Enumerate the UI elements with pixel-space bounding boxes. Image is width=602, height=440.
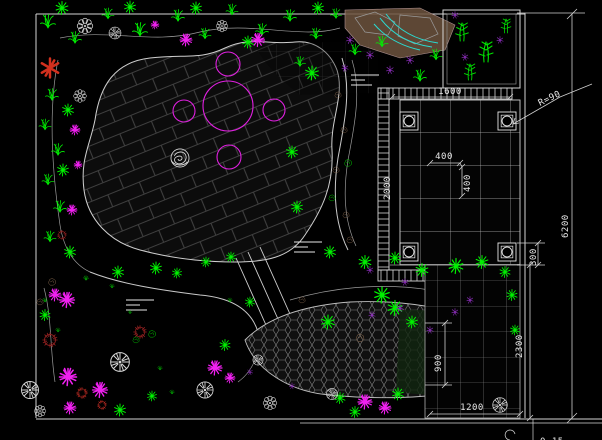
plant-star	[313, 2, 324, 14]
dim-300: 300	[529, 248, 539, 266]
plant-fern	[102, 8, 114, 19]
plant-splash	[379, 402, 391, 414]
plant-rock	[343, 212, 349, 218]
dim-1600: 1600	[438, 87, 462, 97]
plant-fern	[42, 174, 54, 185]
plant-splash	[151, 21, 159, 29]
plant-rock	[299, 297, 305, 303]
plant-fern	[310, 28, 322, 39]
plant-grass	[158, 366, 163, 370]
plant-star	[359, 256, 371, 269]
plant-fern	[199, 28, 211, 39]
dim-6200: 6200	[561, 214, 571, 238]
plant-wheel	[493, 398, 507, 412]
plant-petal	[77, 18, 93, 34]
plant-fern	[69, 32, 82, 44]
plant-purple	[386, 66, 393, 74]
dim-900: 900	[434, 354, 444, 372]
plant-bamboo	[464, 64, 475, 80]
plant-star	[113, 266, 124, 278]
plant-grass	[128, 310, 132, 313]
plant-splash	[225, 373, 235, 383]
plant-splash	[49, 289, 61, 301]
plant-bamboo	[479, 42, 493, 62]
landscape-plan-svg: 1600 R=90 400 400 2000 300 900 1200 2300…	[0, 0, 602, 440]
plant-wheel	[111, 353, 130, 372]
level-spiral-icon	[505, 430, 515, 440]
plant-star	[375, 287, 389, 303]
plant-rock	[37, 299, 43, 305]
plant-purple	[367, 266, 373, 273]
plant-grass	[83, 276, 89, 280]
plant-splash	[70, 125, 80, 135]
pavilion-column	[400, 112, 418, 130]
plant-rock	[341, 127, 347, 133]
plant-fern	[41, 15, 56, 29]
plant-splash	[74, 161, 82, 169]
plant-star	[148, 391, 157, 401]
plant-petal	[216, 20, 228, 32]
plant-wheel	[197, 382, 213, 398]
plant-star	[63, 104, 74, 116]
plant-star	[220, 340, 230, 351]
plant-redshrub	[97, 400, 107, 410]
dim-400-w: 400	[435, 152, 453, 162]
pond-edge-top	[90, 272, 258, 332]
plant-star	[151, 262, 162, 274]
plant-star	[350, 407, 360, 418]
plant-redshrub	[133, 325, 147, 339]
plant-star	[125, 1, 136, 13]
pavilion-column	[400, 243, 418, 261]
plant-splash	[64, 402, 76, 414]
plant-redshrub	[42, 332, 57, 347]
plant-fern	[46, 89, 59, 101]
dim-400-h: 400	[463, 174, 473, 192]
plant-fern	[44, 231, 56, 242]
plant-grass	[56, 328, 61, 332]
dim-2000: 2000	[383, 176, 393, 200]
plant-purple	[462, 53, 468, 60]
plant-splash	[67, 205, 77, 215]
plant-bamboo	[456, 23, 469, 41]
plant-petal	[263, 396, 277, 410]
plant-rock	[329, 195, 335, 201]
plant-star	[173, 268, 182, 278]
plant-wheel	[109, 27, 121, 39]
plant-fern	[39, 119, 51, 130]
plant-star	[191, 2, 202, 14]
plant-star	[325, 246, 336, 258]
water-mark-icon	[126, 300, 154, 310]
pavilion	[378, 88, 520, 281]
plant-star	[65, 246, 76, 258]
plant-wheel	[326, 388, 337, 399]
plant-fern	[172, 10, 185, 22]
pavilion-column	[498, 243, 516, 261]
plant-rock	[133, 337, 139, 343]
plant-fern	[414, 70, 427, 82]
pavilion-column	[498, 112, 516, 130]
pond-edge-left	[44, 288, 55, 382]
plant-splash	[93, 383, 108, 398]
plant-rock	[148, 330, 155, 337]
cad-drawing-canvas: 1600 R=90 400 400 2000 300 900 1200 2300…	[0, 0, 602, 440]
plant-bamboo	[501, 19, 511, 33]
plant-splash	[60, 369, 77, 386]
plant-petal	[74, 90, 87, 103]
plant-grass	[170, 390, 175, 394]
plant-purple	[406, 56, 413, 64]
plant-purple	[452, 11, 458, 18]
plant-fern	[284, 10, 297, 22]
plant-wheel	[22, 382, 39, 399]
lower-terrace-area	[425, 265, 520, 418]
plant-star	[58, 164, 69, 176]
plant-star	[56, 1, 68, 14]
plant-star	[115, 404, 126, 416]
plant-star	[246, 297, 255, 307]
plant-fern	[54, 201, 67, 213]
plant-splash	[60, 293, 75, 308]
plant-star	[390, 252, 401, 264]
bamboo-planter	[443, 10, 520, 88]
plant-fern	[331, 9, 342, 19]
plant-purple	[497, 36, 503, 43]
plant-wheel	[253, 355, 263, 365]
dim-2300: 2300	[515, 334, 525, 358]
dim-radius: R=90	[537, 89, 563, 108]
plant-fern	[52, 144, 65, 156]
plant-splash	[208, 361, 222, 375]
dim-1200: 1200	[460, 403, 484, 413]
plant-fern	[133, 23, 148, 37]
plant-rock	[48, 278, 55, 285]
plant-grass	[110, 284, 115, 288]
plant-redshrub	[76, 387, 88, 399]
plant-fern	[226, 4, 238, 15]
